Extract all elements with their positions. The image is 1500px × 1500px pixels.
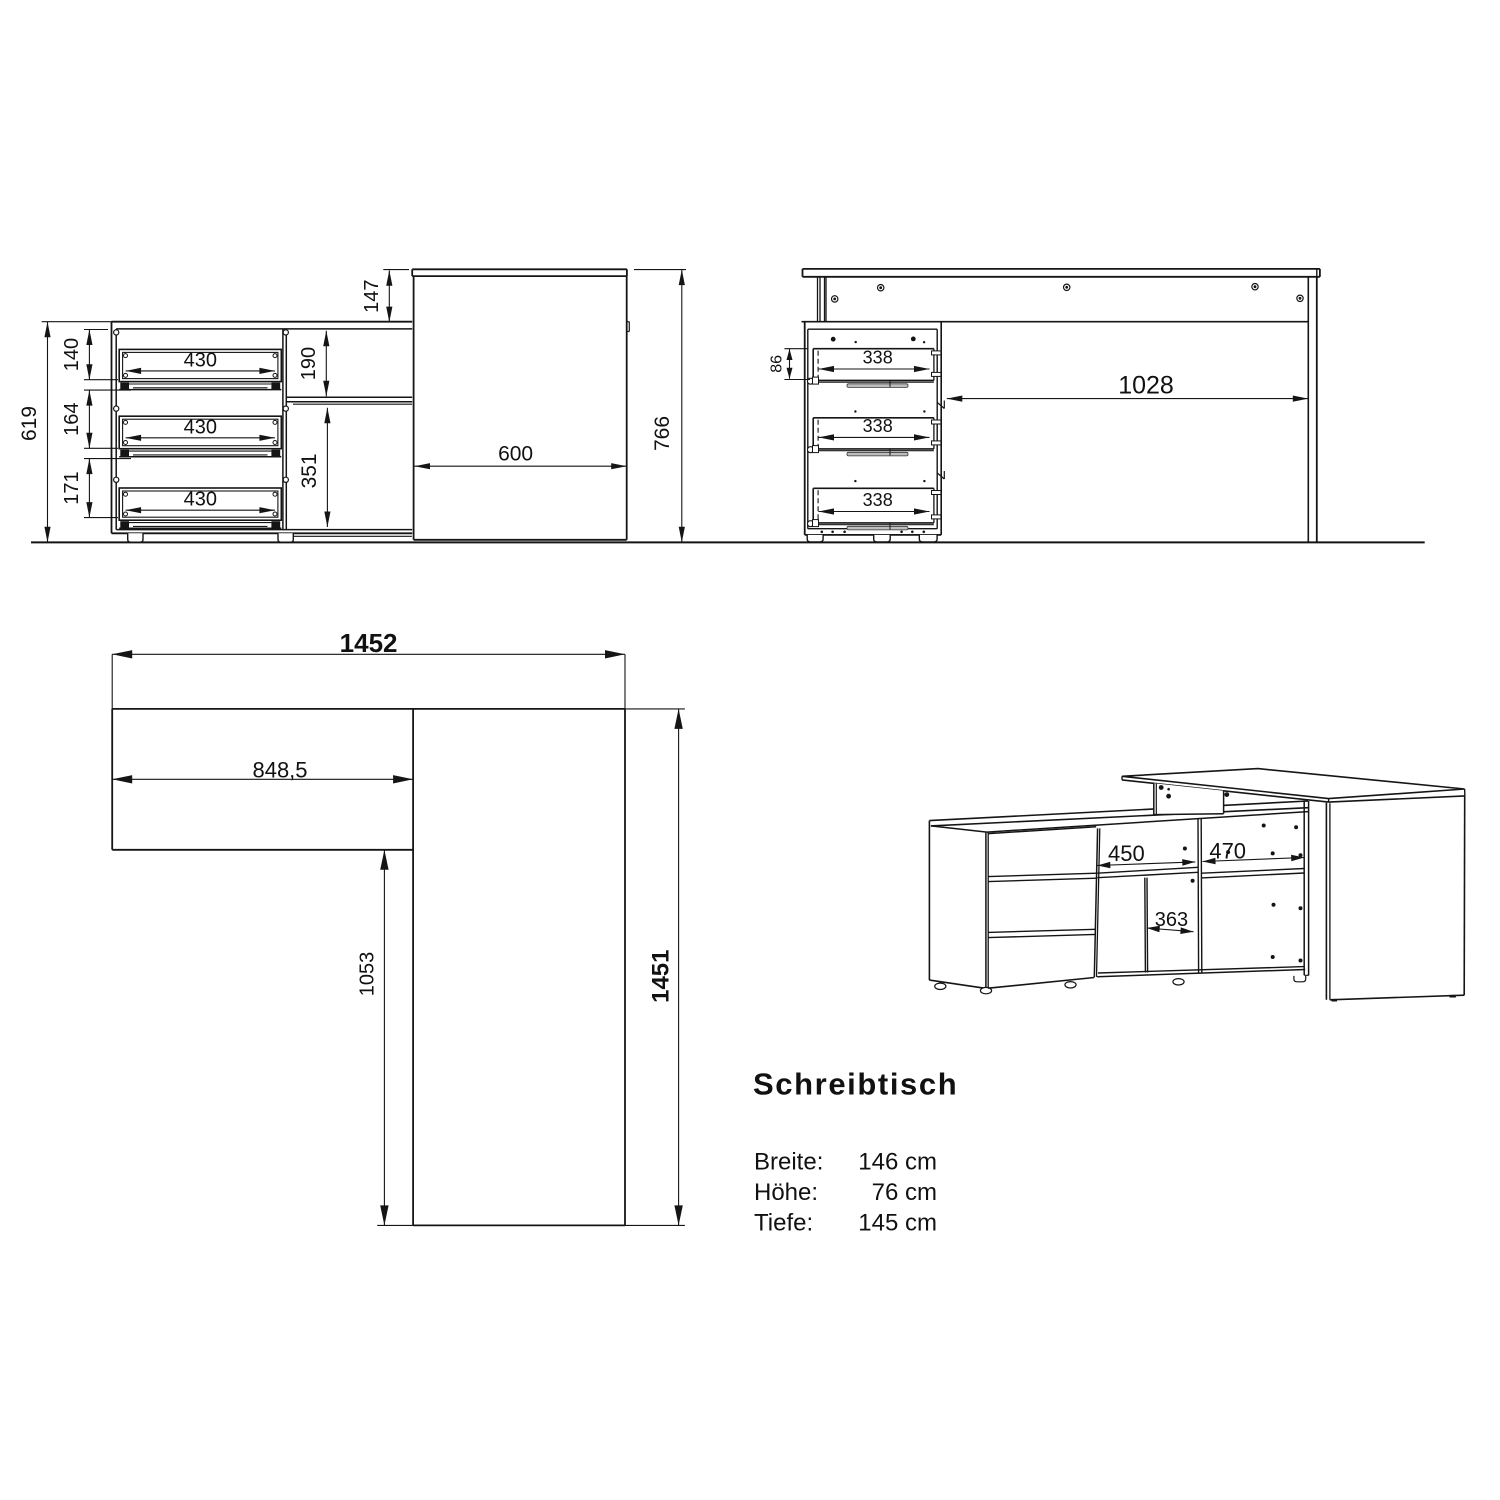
svg-text:76 cm: 76 cm <box>872 1179 937 1206</box>
svg-text:338: 338 <box>863 490 893 510</box>
svg-text:450: 450 <box>1108 841 1145 866</box>
svg-text:351: 351 <box>298 453 321 488</box>
svg-text:171: 171 <box>61 471 83 504</box>
svg-text:146 cm: 146 cm <box>858 1149 937 1176</box>
svg-text:1451: 1451 <box>647 950 674 1003</box>
svg-text:Breite:: Breite: <box>754 1149 823 1176</box>
svg-text:363: 363 <box>1155 909 1188 931</box>
svg-text:619: 619 <box>18 406 41 441</box>
svg-text:140: 140 <box>61 338 83 371</box>
svg-text:430: 430 <box>184 416 217 438</box>
svg-text:338: 338 <box>863 416 893 436</box>
svg-text:470: 470 <box>1209 839 1246 864</box>
svg-text:848,5: 848,5 <box>252 757 307 782</box>
svg-text:338: 338 <box>863 348 893 368</box>
svg-text:430: 430 <box>184 349 217 371</box>
svg-text:164: 164 <box>61 403 83 436</box>
svg-text:145 cm: 145 cm <box>858 1209 937 1236</box>
svg-text:Höhe:: Höhe: <box>754 1179 818 1206</box>
svg-text:1452: 1452 <box>340 628 398 658</box>
svg-text:Schreibtisch: Schreibtisch <box>753 1067 958 1102</box>
svg-text:600: 600 <box>498 443 533 466</box>
svg-text:86: 86 <box>769 355 786 373</box>
svg-text:766: 766 <box>651 416 674 451</box>
svg-text:Tiefe:: Tiefe: <box>754 1209 813 1236</box>
svg-text:430: 430 <box>184 489 217 511</box>
svg-text:1053: 1053 <box>356 952 378 997</box>
svg-text:1028: 1028 <box>1118 372 1174 400</box>
svg-text:190: 190 <box>298 347 320 380</box>
svg-text:147: 147 <box>361 280 383 313</box>
